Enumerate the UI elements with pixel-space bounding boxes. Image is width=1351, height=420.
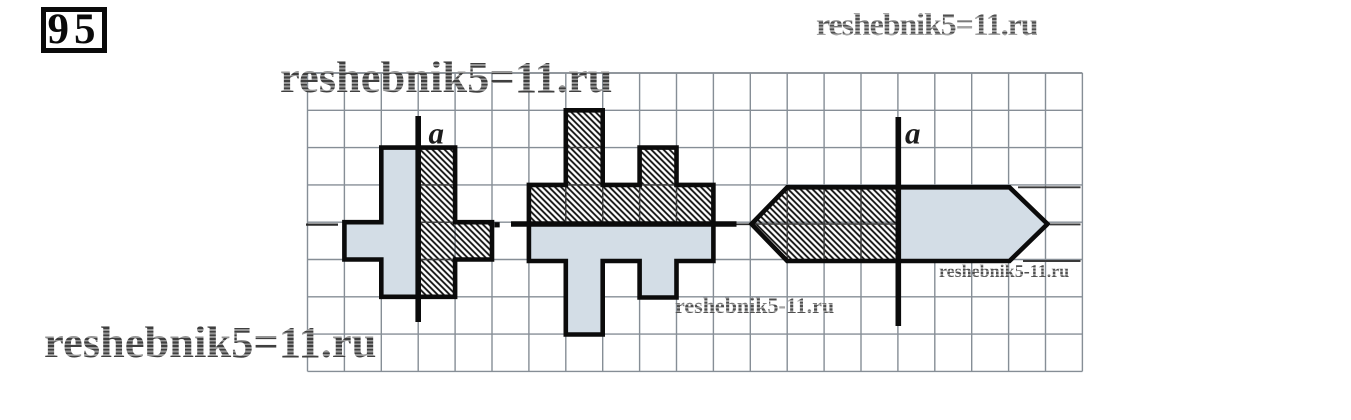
svg-text:a: a bbox=[429, 116, 445, 151]
svg-text:a: a bbox=[905, 116, 921, 151]
